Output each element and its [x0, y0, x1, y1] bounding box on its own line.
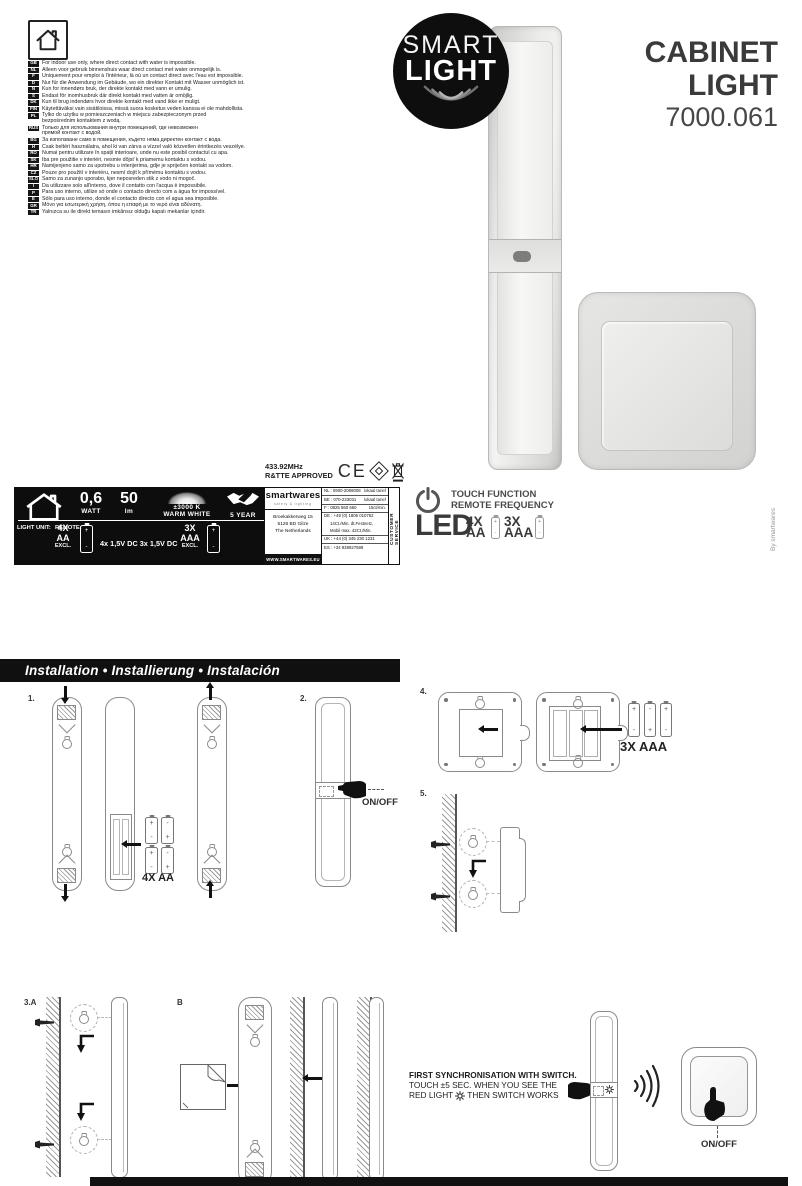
step-b-label: B: [177, 998, 183, 1007]
red-light-icon: [455, 1091, 465, 1101]
red-light-icon: [605, 1085, 614, 1094]
battery-cell-icon: +-: [628, 703, 640, 737]
arrow-down-icon: [64, 884, 67, 896]
approval-block: 433.92MHz R&TTE APPROVED CE: [265, 456, 405, 486]
language-code-badge: I: [28, 184, 39, 190]
title-block: CABINET LIGHT 7000.061: [556, 36, 778, 133]
keyhole-detail-circle: [70, 1004, 98, 1032]
dashed-connector: [717, 1126, 718, 1138]
touch-function-label: TOUCH FUNCTION: [451, 489, 554, 500]
pad-fold-icon: [181, 1065, 225, 1109]
spec-divider: [18, 520, 264, 521]
keyhole-icon: [80, 1011, 88, 1024]
by-smartwares: By smartwares: [770, 487, 777, 551]
battery-cell-icon: -+: [644, 703, 656, 737]
keyhole-icon: [251, 1034, 259, 1047]
aaa-battery-spec: 3X AAA EXCL.: [176, 524, 204, 550]
model-number: 7000.061: [556, 102, 778, 133]
class-ii-icon: [369, 461, 389, 481]
language-code-badge: HR: [28, 164, 39, 170]
light-unit-back: [197, 697, 227, 891]
step-4-label: 4.: [420, 687, 427, 696]
keyhole-detail-circle: [459, 828, 487, 856]
language-code-badge: GB: [28, 61, 39, 67]
keyhole-detail-circle: [459, 880, 487, 908]
arrow-left-icon: [308, 1077, 322, 1080]
arrow-left-icon: [484, 728, 498, 731]
frequency-value: 433.92MHz: [265, 462, 333, 471]
wall: [290, 997, 305, 1181]
keyhole-icon: [476, 696, 484, 709]
step-2-label: 2.: [300, 694, 307, 703]
arrow-left-icon: [127, 843, 141, 846]
screw-icon: [34, 1018, 56, 1027]
customer-service-label: CUSTOMER SERVICE: [390, 507, 400, 545]
slide-cap: [57, 868, 76, 883]
dashed-connector: [368, 789, 384, 790]
lumen-value: 50: [112, 491, 146, 508]
rtte-approved: R&TTE APPROVED: [265, 471, 333, 480]
red-light-text: RED LIGHT: [409, 1091, 453, 1101]
switch-works-text: THEN SWITCH WORKS: [467, 1091, 558, 1101]
aaa-type: AAA: [504, 527, 533, 538]
language-text: Yalnızca su ile direkt temasın imkânsız …: [42, 210, 206, 216]
screw-icon: [34, 1140, 56, 1149]
hang-arrow-icon: [464, 857, 488, 879]
address-line: 5126 BD Gilze: [265, 521, 321, 528]
press-finger-icon: [702, 1085, 728, 1123]
language-code-badge: PL: [28, 113, 39, 119]
language-code-badge: BG: [28, 138, 39, 144]
voltage-text: 4x 1,5V DC 3x 1,5V DC: [100, 539, 177, 548]
door-tab: [520, 725, 530, 741]
phone-row: DE : +49 (0) 1805 010762: [322, 513, 388, 520]
customer-service-strip: CUSTOMER SERVICE: [388, 488, 399, 564]
phone-row: NL : 0900-2088008lokaal tarief: [322, 488, 388, 496]
phone-row: Mobil max. 42Ct./Min.: [322, 528, 388, 536]
switch-button: [601, 321, 733, 451]
language-code-badge: P: [28, 190, 39, 196]
language-code-badge: DK: [28, 100, 39, 106]
aaa-type: AAA: [176, 534, 204, 544]
bottom-bar: [90, 1177, 788, 1186]
spec-watt: 0,6 WATT: [70, 491, 112, 515]
website: WWW.SMARTWARES.EU: [265, 554, 321, 564]
language-code-badge: CZ: [28, 171, 39, 177]
aa-batteries-label: 4X AA: [142, 872, 174, 884]
touch-strip: [591, 1082, 617, 1098]
keyhole-icon: [469, 835, 477, 848]
language-code-badge: SLO: [28, 177, 39, 183]
language-code-badge: F: [28, 74, 39, 80]
screw-icon: [430, 840, 452, 849]
battery-cell-icon: -+: [161, 847, 174, 874]
battery-cell-icon: +-: [80, 525, 93, 553]
led-label: LED: [415, 511, 472, 541]
aa-type: AA: [50, 534, 76, 544]
light-unit-label: LIGHT UNIT:: [17, 525, 51, 531]
aa-excl: EXCL.: [50, 543, 76, 550]
language-code-badge: FIN: [28, 107, 39, 113]
watt-label: WATT: [70, 508, 112, 515]
house-icon: [34, 28, 62, 52]
color-temp-label: WARM WHITE: [148, 511, 226, 518]
light-unit-back-open: [105, 697, 135, 891]
phone-list: NL : 0900-2088008lokaal tariefBE : 070-2…: [322, 488, 388, 564]
arrow-up-icon: [209, 688, 212, 700]
address-line: The Netherlands: [265, 528, 321, 535]
step-1-label: 1.: [28, 694, 35, 703]
aaa-excl: EXCL.: [176, 543, 204, 550]
remote-side-view: [500, 827, 520, 913]
signal-arcs-icon: [415, 84, 487, 112]
hang-arrow-icon: [72, 1100, 96, 1122]
language-code-badge: N: [28, 87, 39, 93]
light-unit-side-view: [111, 997, 128, 1178]
language-code-badge: RUS: [28, 126, 39, 132]
battery-cell-icon: -+: [161, 817, 174, 844]
radio-waves-icon: [629, 1058, 665, 1114]
spec-warranty: 5 YEAR: [220, 491, 266, 519]
feature-aaa: 3X AAA: [504, 516, 533, 538]
aa-batteries: +--++--+: [145, 817, 174, 874]
touch-button-outline: [593, 1086, 604, 1096]
touch-button: [513, 251, 531, 262]
warranty-label: 5 YEAR: [220, 512, 266, 519]
keyhole-detail-circle: [70, 1126, 98, 1154]
contact-box: smartwares safety & lighting Broekakkerw…: [264, 487, 400, 565]
language-code-badge: RO: [28, 151, 39, 157]
touch-strip: [489, 239, 561, 273]
touch-button-outline: [319, 786, 334, 797]
feature-aa: 4X AA: [466, 516, 486, 538]
battery-cell-icon: +-: [535, 517, 544, 539]
ce-mark-icon: CE: [338, 461, 367, 482]
language-instructions: GBFor indoor use only, where direct cont…: [28, 61, 376, 216]
language-row: TRYalnızca su ile direkt temasın imkânsı…: [28, 210, 376, 216]
phone-row: F : 0825 560 66015ct/min.: [322, 505, 388, 513]
battery-cell-icon: +-: [491, 517, 500, 539]
language-code-badge: GR: [28, 203, 39, 209]
arrow-down-icon: [64, 686, 67, 698]
logo-light: LIGHT: [393, 57, 509, 86]
aa-battery-spec: 4X AA EXCL.: [50, 524, 76, 550]
handshake-icon: [226, 491, 260, 507]
warm-glow-icon: [165, 489, 209, 504]
language-code-badge: NL: [28, 68, 39, 74]
keyhole-icon: [208, 736, 216, 749]
weee-bin-icon: [391, 461, 405, 482]
onoff-label: ON/OFF: [701, 1139, 737, 1150]
language-code-badge: E: [28, 197, 39, 203]
spec-lumen: 50 lm: [112, 491, 146, 515]
aaa-batteries: +--++-: [628, 703, 672, 737]
onoff-label: ON/OFF: [362, 797, 398, 808]
battery-cell-icon: +-: [145, 847, 158, 874]
brand-subtitle: safety & lighting: [265, 501, 321, 510]
address-line: Broekakkerweg 15: [265, 514, 321, 521]
address: Broekakkerweg 15 5126 BD Gilze The Nethe…: [265, 510, 321, 555]
light-unit-back: [52, 697, 82, 891]
keyhole-icon: [469, 887, 477, 900]
smartwares-logo: smartwares: [265, 488, 321, 501]
dashed-connector: [486, 841, 500, 842]
dashed-connector: [486, 893, 500, 894]
battery-icon: +-: [80, 525, 93, 553]
frequency-approval: 433.92MHz R&TTE APPROVED: [265, 462, 333, 481]
phone-row: BE : 070-233031lokaal tarief: [322, 496, 388, 504]
language-code-badge: TR: [28, 210, 39, 216]
battery-compartment: [549, 706, 601, 761]
spec-color-temp: ±3000 K WARM WHITE: [148, 489, 226, 518]
language-code-badge: S: [28, 94, 39, 100]
language-code-badge: SK: [28, 158, 39, 164]
arrow-left-icon: [586, 728, 622, 731]
language-row: PLTylko do użytku w pomieszczeniach w mi…: [28, 113, 376, 125]
light-unit-side-view: [322, 997, 338, 1181]
phone-row: UK : +44 (0) 345 230 1231: [322, 536, 388, 544]
aa-type: AA: [466, 527, 486, 538]
phone-row: ES : +34 938927589: [322, 544, 388, 551]
language-code-badge: H: [28, 145, 39, 151]
language-row: RUSТолько для использования внутри помещ…: [28, 126, 376, 138]
slide-cap: [245, 1162, 264, 1177]
dashed-connector: [97, 1017, 112, 1018]
battery-cell-icon: +-: [145, 817, 158, 844]
manual-page: GBFor indoor use only, where direct cont…: [0, 0, 802, 1186]
arrow-up-icon: [209, 886, 212, 898]
light-unit-back: [238, 997, 272, 1185]
language-text: Tylko do użytku w pomieszczeniach w miej…: [42, 113, 206, 125]
lumen-label: lm: [112, 508, 146, 515]
watt-value: 0,6: [70, 491, 112, 508]
color-temp-value: ±3000 K: [148, 504, 226, 511]
language-text: Только для использования внутри помещени…: [42, 126, 198, 138]
sync-instructions: FIRST SYNCHRONISATION WITH SWITCH. TOUCH…: [409, 1071, 587, 1101]
light-unit-mounted: [369, 997, 384, 1181]
language-code-badge: D: [28, 81, 39, 87]
remote-switch-product: [578, 292, 756, 470]
sync-line3: RED LIGHT THEN SWITCH WORKS: [409, 1091, 587, 1101]
battery-cell-icon: +-: [660, 703, 672, 737]
feature-block: TOUCH FUNCTION REMOTE FREQUENCY LED 4X A…: [415, 486, 575, 548]
battery-icon: +-: [535, 517, 544, 539]
hang-arrow-icon: [72, 1032, 96, 1054]
battery-icon: +-: [207, 525, 220, 553]
phone-row: 14Ct./Min. dt.Festnetz,: [322, 520, 388, 527]
page-title: CABINET LIGHT: [556, 36, 778, 102]
keyhole-icon: [63, 736, 71, 749]
light-unit-front: [590, 1011, 618, 1171]
dashed-connector: [97, 1139, 112, 1140]
battery-cell-icon: +-: [207, 525, 220, 553]
adhesive-pad: [180, 1064, 226, 1110]
battery-icon: +-: [491, 517, 500, 539]
screw-icon: [430, 892, 452, 901]
wall: [442, 794, 457, 932]
step-5-label: 5.: [420, 789, 427, 798]
aaa-batteries-label: 3X AAA: [620, 739, 667, 754]
keyhole-icon: [80, 1133, 88, 1146]
installation-heading-bar: Installation • Installierung • Instalaci…: [0, 659, 400, 682]
smart-light-logo: SMART LIGHT: [393, 13, 509, 129]
step-3a-label: 3.A: [24, 998, 36, 1007]
indoor-use-icon: [28, 20, 68, 60]
contact-address-column: smartwares safety & lighting Broekakkerw…: [265, 488, 322, 564]
house-icon-white: [22, 492, 66, 522]
